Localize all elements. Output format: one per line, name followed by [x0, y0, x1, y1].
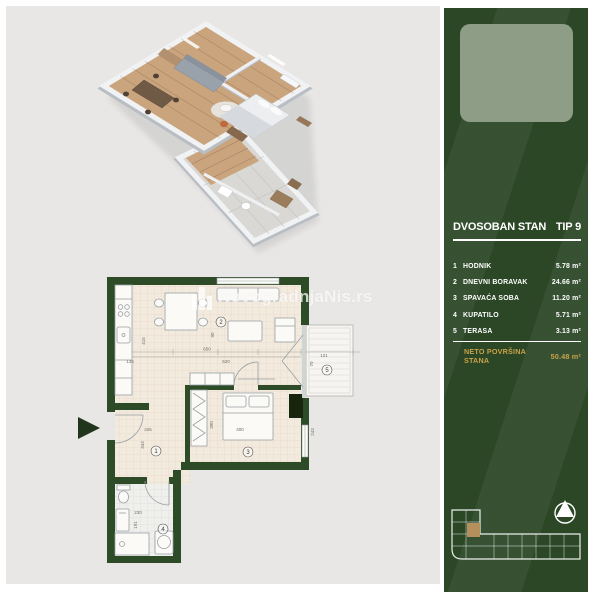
dining-table: [165, 293, 197, 330]
coffee-table-2d: [228, 321, 262, 341]
wardrobe-2d: [190, 373, 234, 385]
tv-unit-2d: [275, 318, 295, 342]
dim-label: 230: [134, 510, 142, 515]
toilet-3d: [242, 203, 251, 210]
entrance-arrow-icon: [78, 417, 100, 439]
room-number: 2: [453, 279, 463, 286]
washbasin: [116, 509, 129, 531]
highlighted-unit: [467, 523, 480, 537]
floorplan-2d: 1 2 3 4 5 650 520 135 415 90 121 70 345 …: [70, 265, 370, 575]
pillow: [226, 396, 246, 407]
room-row: 2 DNEVNI BORAVAK 24.66 m²: [453, 274, 581, 290]
toilet: [119, 491, 129, 503]
dim-label: 243: [310, 428, 315, 436]
total-value: 50.48 m²: [551, 352, 581, 361]
dim-label: 650: [203, 347, 211, 352]
panel-title: DVOSOBAN STAN: [453, 221, 546, 233]
bathtub: [115, 533, 149, 555]
site-plan: [446, 494, 586, 586]
room-name: DNEVNI BORAVAK: [463, 279, 552, 286]
kitchen-sink: [117, 327, 130, 343]
room-area: 5.78 m²: [556, 263, 581, 270]
room-name: HODNIK: [463, 263, 556, 270]
room-number: 4: [453, 312, 463, 319]
dim-label: 520: [222, 359, 230, 364]
dim-label: 90: [210, 332, 215, 338]
dim-label: 121: [320, 353, 328, 358]
shaft: [289, 394, 303, 418]
page: { "panel": { "title": "DVOSOBAN STAN", "…: [0, 0, 600, 600]
accent-chair-3d: [220, 121, 228, 127]
room-row: 1 HODNIK 5.78 m²: [453, 258, 581, 274]
room-row: 4 KUPATILO 5.71 m²: [453, 307, 581, 323]
room-row: 5 TERASA 3.13 m²: [453, 324, 581, 340]
room-number: 3: [453, 295, 463, 302]
sofa-2d: [217, 288, 279, 301]
room-area: 24.66 m²: [552, 279, 581, 286]
pillow: [249, 396, 269, 407]
floorplan-3d: [74, 16, 328, 260]
room-row: 3 SPAVAĆA SOBA 11.20 m²: [453, 291, 581, 307]
panel-header: DVOSOBAN STAN TIP 9: [453, 221, 581, 233]
dim-label: 70: [309, 361, 314, 367]
left-canvas: 1 2 3 4 5 650 520 135 415 90 121 70 345 …: [6, 6, 440, 584]
toilet-tank: [117, 485, 130, 490]
terrace: [306, 325, 353, 396]
logo-placeholder: [460, 24, 573, 122]
room-number: 5: [453, 328, 463, 335]
dim-label: 400: [236, 427, 244, 432]
dim-label: 191: [133, 521, 138, 529]
room-name: KUPATILO: [463, 312, 556, 319]
room-number: 1: [453, 263, 463, 270]
dim-label: 135: [126, 359, 134, 364]
north-arrow-icon: [555, 500, 575, 523]
dim-label: 343: [140, 441, 145, 449]
dim-label: 345: [144, 427, 152, 432]
room-area: 5.71 m²: [556, 312, 581, 319]
room-name: SPAVAĆA SOBA: [463, 295, 552, 302]
room-area: 11.20 m²: [552, 295, 581, 302]
total-divider: [453, 341, 581, 343]
room-area: 3.13 m²: [556, 328, 581, 335]
room-name: TERASA: [463, 328, 556, 335]
total-label: NETO POVRŠINA STANA: [453, 347, 551, 365]
header-divider: [453, 239, 581, 241]
closet-2d: [191, 390, 207, 446]
dim-label: 415: [141, 337, 146, 345]
info-panel: DVOSOBAN STAN TIP 9 1 HODNIK 5.78 m² 2 D…: [444, 8, 588, 592]
total-row: NETO POVRŠINA STANA 50.48 m²: [453, 347, 581, 365]
panel-type: TIP 9: [556, 221, 581, 233]
dim-label: 390: [209, 421, 214, 429]
rooms-list: 1 HODNIK 5.78 m² 2 DNEVNI BORAVAK 24.66 …: [453, 258, 581, 365]
